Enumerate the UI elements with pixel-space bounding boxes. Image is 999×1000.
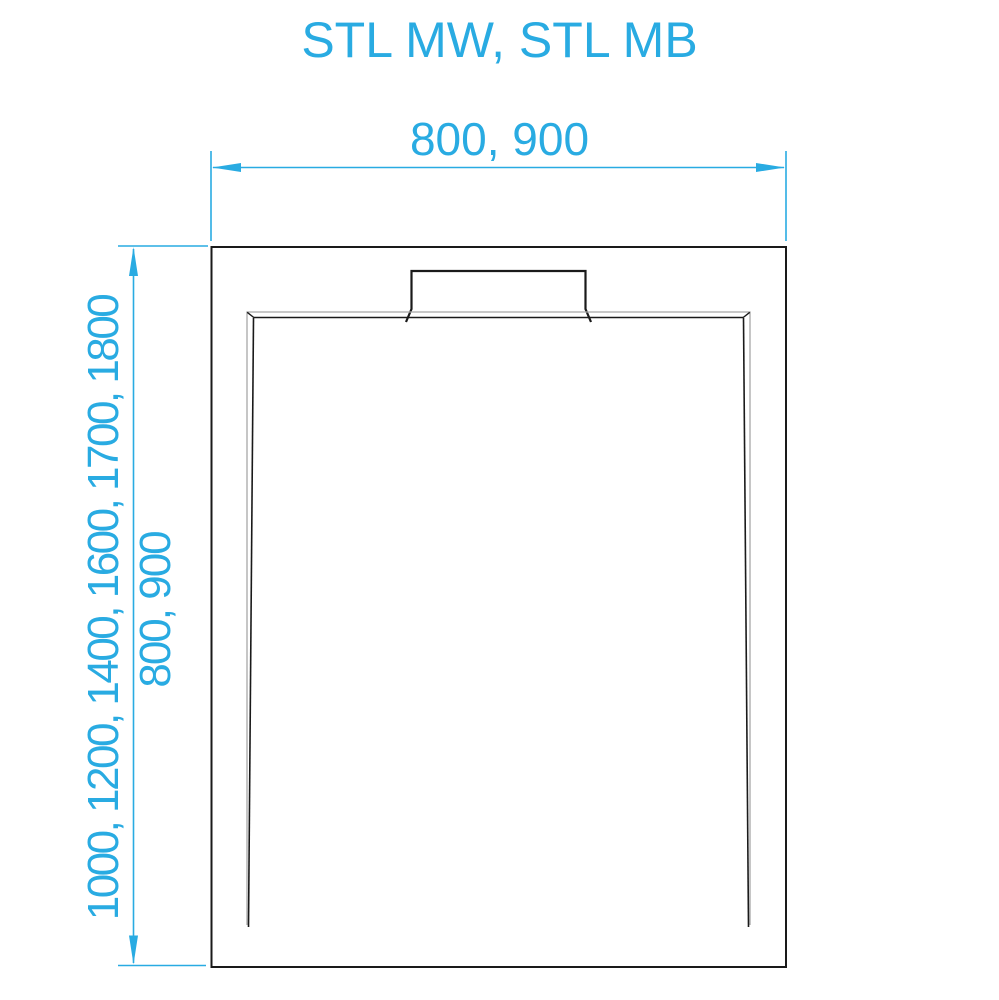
rim-corner-bevel-left xyxy=(247,312,254,317)
width-dim-arrow-right-icon xyxy=(756,163,785,172)
technical-drawing-canvas: STL MW, STL MB 800, 900 1000, 1200, 1400… xyxy=(0,0,999,1000)
width-dim-arrow-left-icon xyxy=(212,163,241,172)
rim-edge-dark-right xyxy=(744,318,749,927)
shower-tray-line-drawing xyxy=(0,0,999,1000)
rim-edge-dark-left xyxy=(249,318,254,927)
rim-edge-light-outline xyxy=(247,312,750,925)
tray-outer-outline xyxy=(212,247,787,967)
rim-corner-bevel-right xyxy=(743,312,750,317)
drain-cover-outline xyxy=(406,271,591,322)
length-dim-arrow-top-icon xyxy=(129,247,138,276)
length-dim-arrow-bottom-icon xyxy=(129,936,138,965)
